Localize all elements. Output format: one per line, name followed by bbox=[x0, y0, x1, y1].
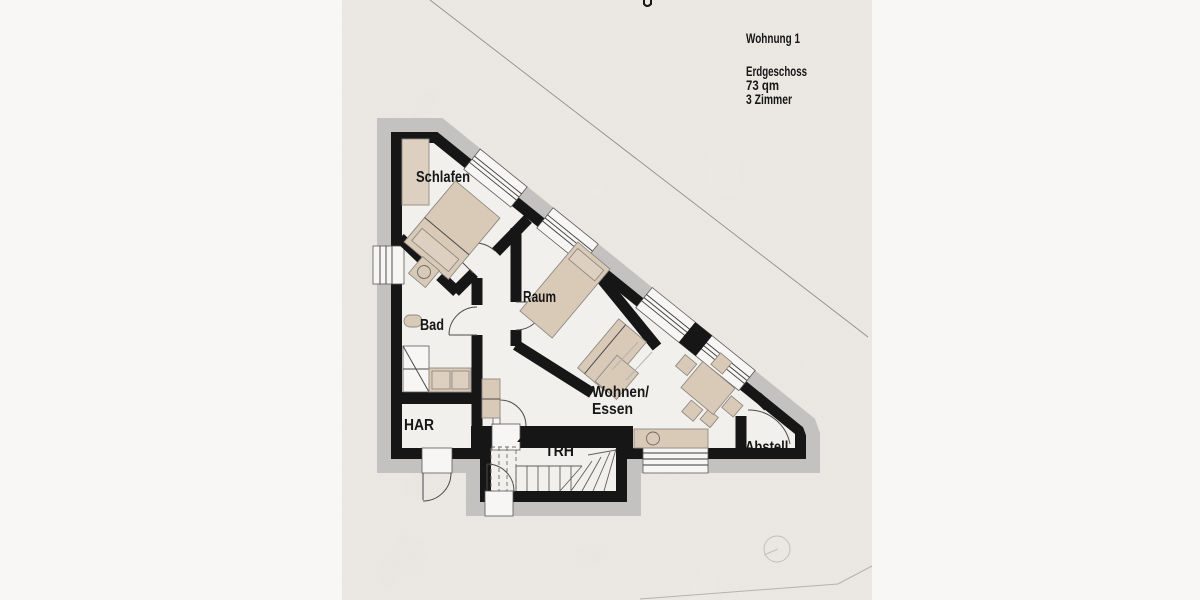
label-essen: Essen bbox=[592, 401, 633, 418]
label-bad: Bad bbox=[420, 317, 444, 334]
label-abstell: Abstell. bbox=[745, 439, 792, 456]
title-area: 73 qm bbox=[746, 78, 779, 93]
label-wohnen: Wohnen/ bbox=[592, 384, 649, 401]
label-raum: Raum bbox=[523, 289, 556, 306]
window-kitchen-bottom bbox=[643, 448, 708, 473]
floor-plan-canvas: Schlafen Raum Bad HAR Wohnen/ Essen TRH … bbox=[0, 0, 1200, 600]
window-left-wall bbox=[373, 246, 404, 284]
title-apartment: Wohnung 1 bbox=[746, 31, 800, 46]
kitchen-counter bbox=[634, 429, 708, 448]
floor-plan-page: Schlafen Raum Bad HAR Wohnen/ Essen TRH … bbox=[0, 0, 1200, 600]
vanity-washbasins bbox=[429, 368, 471, 392]
title-room-count: 3 Zimmer bbox=[746, 92, 793, 107]
label-har: HAR bbox=[404, 417, 434, 434]
title-floor: Erdgeschoss bbox=[746, 64, 807, 79]
corridor-closet bbox=[482, 379, 500, 418]
label-trh: TRH bbox=[545, 443, 574, 460]
shower bbox=[403, 346, 429, 392]
label-schlafen: Schlafen bbox=[416, 169, 470, 186]
